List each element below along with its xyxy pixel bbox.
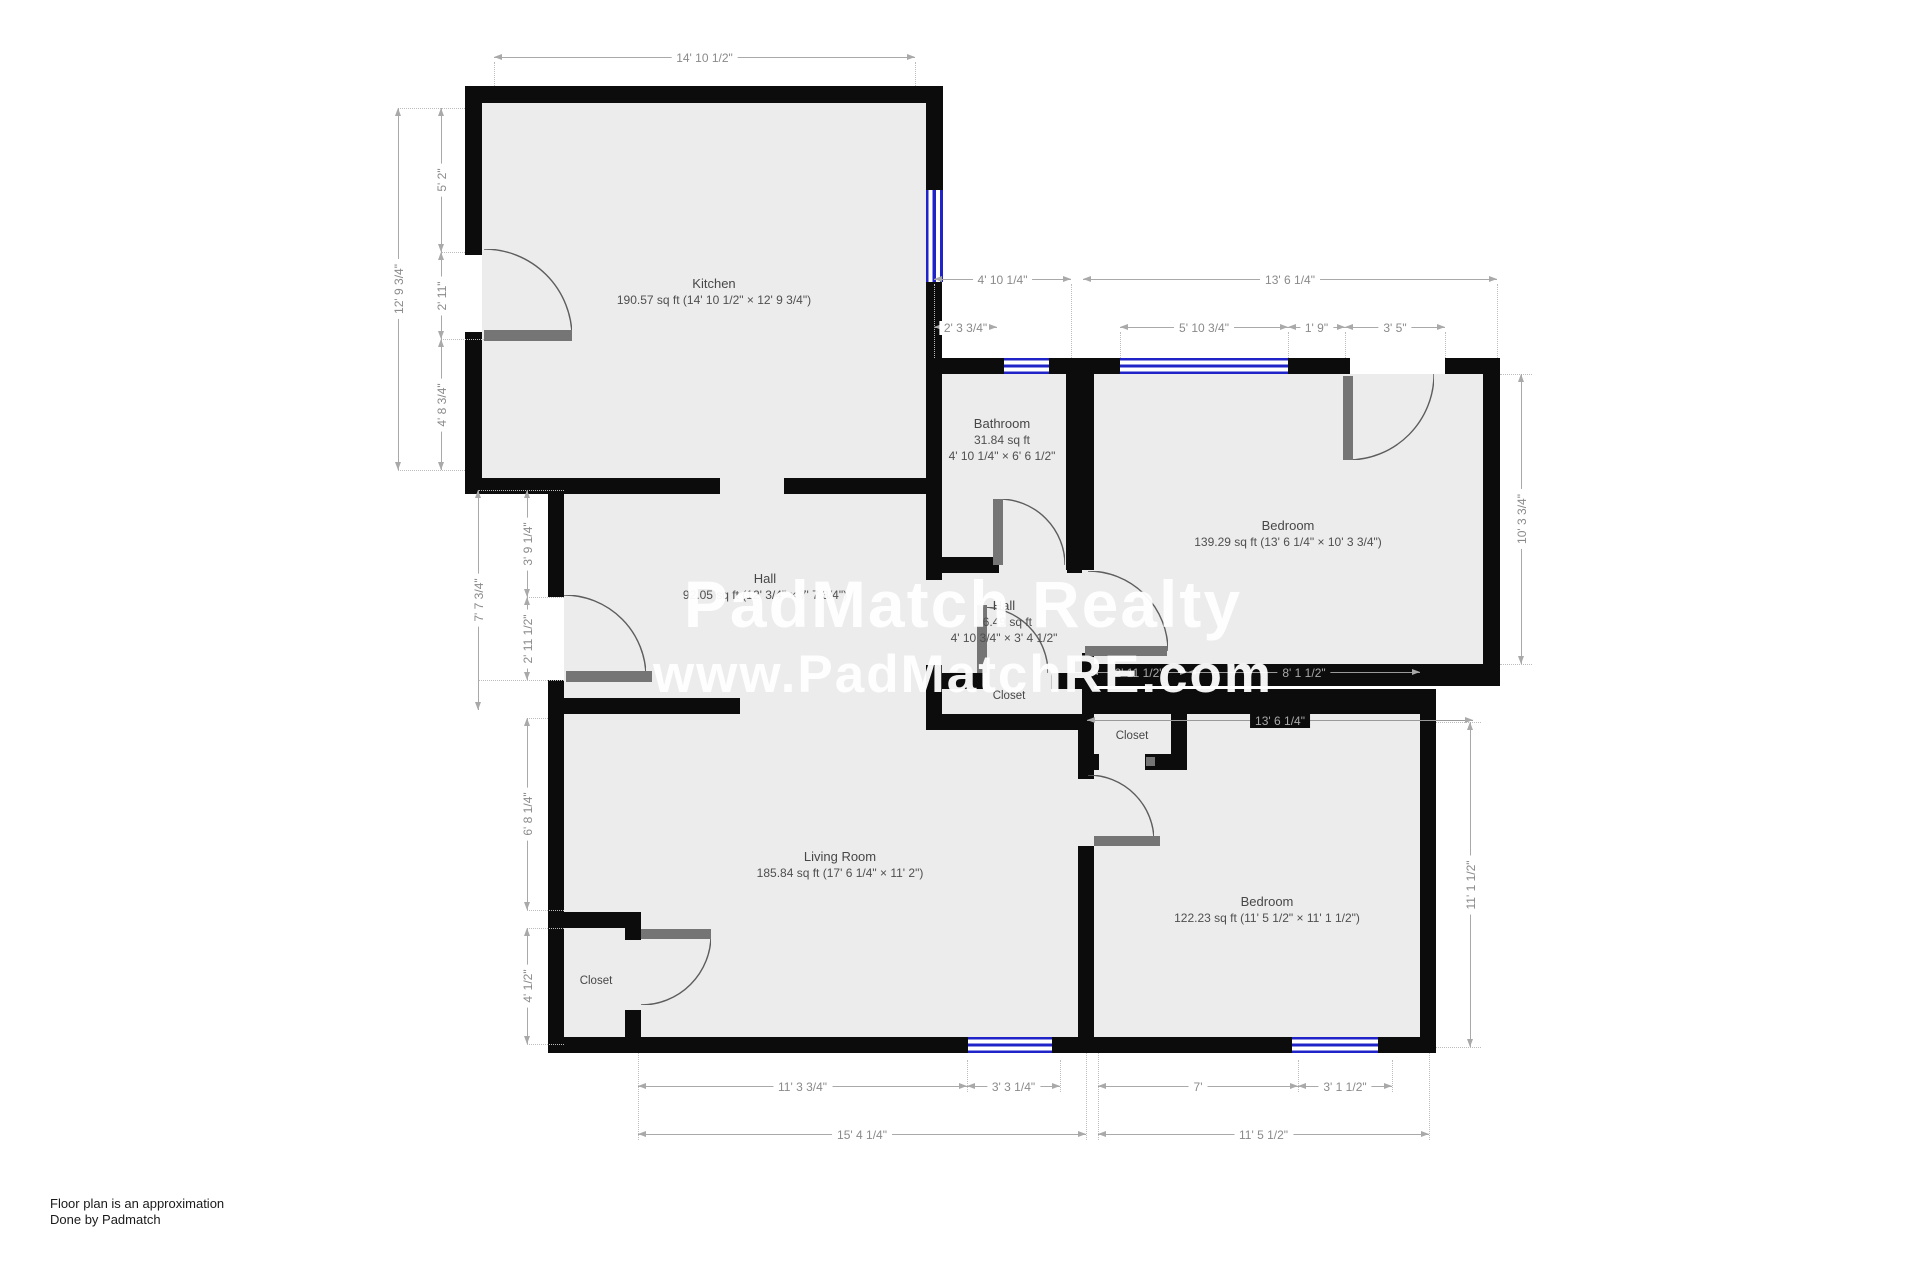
extension-line	[1436, 722, 1481, 723]
extension-line	[1497, 284, 1498, 358]
room-size: 4' 10 1/4" × 6' 6 1/2"	[949, 448, 1056, 464]
dim-bedroom2-height: 11' 1 1/2"	[1470, 722, 1471, 1047]
dim-kitchen-seg-top: 5' 2"	[441, 108, 442, 252]
dim-living-bottom-a: 11' 3 3/4"	[638, 1086, 967, 1087]
dim-label: 7' 7 3/4"	[472, 573, 486, 626]
window-bedroom1	[1120, 358, 1288, 374]
wall	[465, 86, 943, 103]
extension-line	[915, 62, 916, 86]
window-kitchen	[926, 190, 943, 282]
dim-bedroom1-window: 5' 10 3/4"	[1120, 327, 1288, 328]
dim-label: 8' 1 1/2"	[1277, 666, 1330, 680]
door-leaf-living-closet	[641, 929, 711, 939]
room-details: 122.23 sq ft (11' 5 1/2" × 11' 1 1/2")	[1174, 910, 1360, 926]
room-name: Closet	[1116, 728, 1149, 744]
wall	[465, 478, 720, 494]
wall	[625, 928, 641, 940]
dim-hall-door: 2' 11 1/2"	[527, 597, 528, 680]
wall	[548, 1037, 968, 1053]
extension-line	[1060, 1060, 1061, 1092]
door-arc-hall	[564, 595, 646, 677]
room-label-kitchen: Kitchen 190.57 sq ft (14' 10 1/2" × 12' …	[617, 276, 811, 308]
dim-label: 3' 5"	[1378, 321, 1411, 335]
floor-plan: 14' 10 1/2" 12' 9 3/4" 5' 2" 2' 11" 4' 8…	[0, 0, 1920, 1280]
room-label-living-closet: Closet	[580, 973, 613, 989]
dim-hall-seg-top: 3' 9 1/4"	[527, 490, 528, 597]
footer-note: Floor plan is an approximation Done by P…	[50, 1196, 224, 1228]
dim-label: 5' 10 3/4"	[1174, 321, 1234, 335]
wall	[942, 358, 1004, 374]
door-leaf-bathroom	[993, 499, 1003, 565]
dim-living-closet: 4' 1/2"	[527, 928, 528, 1044]
door-arc-bedroom2	[1088, 775, 1154, 841]
dim-bedroom1-door: 3' 5"	[1345, 327, 1445, 328]
dim-label: 7'	[1189, 1080, 1208, 1094]
wall	[548, 680, 564, 1053]
extension-line	[441, 339, 484, 340]
door-leaf-hall	[566, 671, 652, 682]
dim-living-width: 15' 4 1/4"	[638, 1134, 1086, 1135]
extension-line	[398, 108, 465, 109]
dim-label: 11' 3 3/4"	[773, 1080, 832, 1094]
dim-bedroom1-height: 10' 3 3/4"	[1521, 374, 1522, 664]
dim-label: 11' 5 1/2"	[1234, 1128, 1293, 1142]
extension-line	[934, 284, 935, 358]
dim-kitchen-width: 14' 10 1/2"	[494, 57, 915, 58]
extension-line	[1500, 374, 1532, 375]
dim-label: 4' 8 3/4"	[435, 378, 449, 431]
wall	[548, 494, 564, 597]
room-label-living-room: Living Room 185.84 sq ft (17' 6 1/4" × 1…	[757, 849, 924, 881]
dim-kitchen-height: 12' 9 3/4"	[398, 108, 399, 470]
extension-line	[527, 910, 564, 911]
dim-label: 3' 1 1/2"	[1318, 1080, 1371, 1094]
dim-living-bottom-b: 3' 3 1/4"	[967, 1086, 1060, 1087]
closet-door-pivot	[1146, 757, 1155, 766]
door-arc-kitchen	[484, 249, 572, 337]
dim-bedroom2-top: 13' 6 1/4"	[1087, 720, 1473, 721]
wall	[465, 86, 482, 255]
dim-label: 10' 3 3/4"	[1515, 489, 1529, 549]
dim-label: 13' 6 1/4"	[1260, 273, 1320, 287]
extension-line	[1288, 332, 1289, 358]
wall	[1049, 358, 1120, 374]
footer-line1: Floor plan is an approximation	[50, 1196, 224, 1212]
room-label-bedroom2-closet: Closet	[1116, 728, 1149, 744]
dim-label: 2' 11"	[435, 276, 449, 315]
extension-line	[1071, 284, 1072, 358]
extension-line	[398, 470, 465, 471]
door-arc-bedroom1-entry	[1348, 374, 1434, 460]
footer-line2: Done by Padmatch	[50, 1212, 224, 1228]
extension-line	[527, 1044, 564, 1045]
dim-bath-width: 4' 10 1/4"	[934, 279, 1071, 280]
door-leaf-kitchen	[484, 330, 572, 341]
extension-line	[1086, 1053, 1087, 1140]
room-label-bedroom2: Bedroom 122.23 sq ft (11' 5 1/2" × 11' 1…	[1174, 894, 1360, 926]
dim-label: 3' 9 1/4"	[521, 517, 535, 570]
dim-bedroom2-bottom-b: 3' 1 1/2"	[1298, 1086, 1392, 1087]
extension-line	[1120, 332, 1121, 358]
dim-bedroom2-width: 11' 5 1/2"	[1098, 1134, 1429, 1135]
dim-label: 14' 10 1/2"	[671, 51, 738, 65]
room-name: Kitchen	[617, 276, 811, 292]
extension-line	[1445, 332, 1446, 358]
room-details: 185.84 sq ft (17' 6 1/4" × 11' 2")	[757, 865, 924, 881]
watermark-line2: www.PadMatchRE.com	[653, 644, 1273, 705]
door-leaf-bedroom2	[1094, 836, 1160, 846]
room-details: 190.57 sq ft (14' 10 1/2" × 12' 9 3/4")	[617, 292, 811, 308]
dim-label: 11' 1 1/2"	[1464, 855, 1478, 914]
room-details: 139.29 sq ft (13' 6 1/4" × 10' 3 3/4")	[1194, 534, 1382, 550]
extension-line	[1098, 1053, 1099, 1140]
dim-label: 6' 8 1/4"	[521, 787, 535, 840]
room-label-bathroom: Bathroom 31.84 sq ft 4' 10 1/4" × 6' 6 1…	[949, 416, 1056, 464]
extension-line	[527, 928, 564, 929]
wall	[625, 1010, 641, 1037]
dim-bedroom1-width: 13' 6 1/4"	[1083, 279, 1497, 280]
extension-line	[1500, 664, 1532, 665]
dim-label: 12' 9 3/4"	[392, 259, 406, 319]
extension-line	[527, 597, 564, 598]
room-area: 31.84 sq ft	[949, 432, 1056, 448]
dim-label: 2' 11 1/2"	[521, 609, 535, 668]
window-bedroom2	[1292, 1037, 1378, 1053]
extension-line	[638, 1053, 639, 1140]
wall	[465, 332, 482, 494]
dim-label: 13' 6 1/4"	[1250, 714, 1310, 728]
dim-living-seg-top: 6' 8 1/4"	[527, 718, 528, 910]
door-leaf-bedroom1-entry	[1343, 376, 1353, 460]
dim-label: 4' 10 1/4"	[973, 273, 1033, 287]
dim-label: 15' 4 1/4"	[832, 1128, 892, 1142]
wall	[1052, 1037, 1292, 1053]
wall	[926, 358, 942, 580]
room-name: Closet	[580, 973, 613, 989]
wall	[1288, 358, 1350, 374]
dim-label: 4' 1/2"	[521, 964, 535, 1007]
wall	[784, 478, 926, 494]
dim-label: 1' 9"	[1300, 321, 1333, 335]
room-name: Living Room	[757, 849, 924, 865]
extension-line	[478, 680, 564, 681]
wall	[548, 912, 641, 928]
extension-line	[527, 718, 548, 719]
extension-line	[1436, 1047, 1481, 1048]
wall	[926, 86, 943, 190]
dim-kitchen-seg-bottom: 4' 8 3/4"	[441, 339, 442, 470]
wall	[1066, 374, 1094, 570]
dim-hall-height: 7' 7 3/4"	[478, 490, 479, 710]
room-name: Bedroom	[1194, 518, 1382, 534]
extension-line	[1429, 1053, 1430, 1140]
room-name: Bedroom	[1174, 894, 1360, 910]
wall	[1483, 358, 1500, 686]
dim-bedroom1-pier: 1' 9"	[1288, 327, 1345, 328]
dim-label: 3' 3 1/4"	[987, 1080, 1040, 1094]
room-label-bedroom1: Bedroom 139.29 sq ft (13' 6 1/4" × 10' 3…	[1194, 518, 1382, 550]
wall	[1378, 1037, 1436, 1053]
wall	[1082, 754, 1099, 770]
dim-bedroom2-bottom-a: 7'	[1098, 1086, 1298, 1087]
window-bathroom	[1004, 358, 1049, 374]
dim-label: 2' 3 3/4"	[939, 321, 992, 335]
extension-line	[494, 62, 495, 86]
extension-line	[441, 252, 465, 253]
watermark-line1: PadMatch Realty	[684, 566, 1242, 642]
dim-label: 5' 2"	[435, 163, 449, 196]
extension-line	[1392, 1060, 1393, 1092]
wall	[926, 714, 1082, 730]
extension-line	[478, 490, 564, 491]
wall	[1078, 846, 1094, 1037]
wall	[1420, 689, 1436, 1053]
room-name: Bathroom	[949, 416, 1056, 432]
dim-bath-seg: 2' 3 3/4"	[934, 327, 997, 328]
extension-line	[1345, 332, 1346, 358]
door-arc-bathroom	[999, 499, 1065, 565]
dim-kitchen-seg-door: 2' 11"	[441, 252, 442, 339]
door-arc-living-closet	[641, 935, 711, 1005]
floor-bedroom2	[1094, 714, 1420, 1037]
window-living-room	[968, 1037, 1052, 1053]
